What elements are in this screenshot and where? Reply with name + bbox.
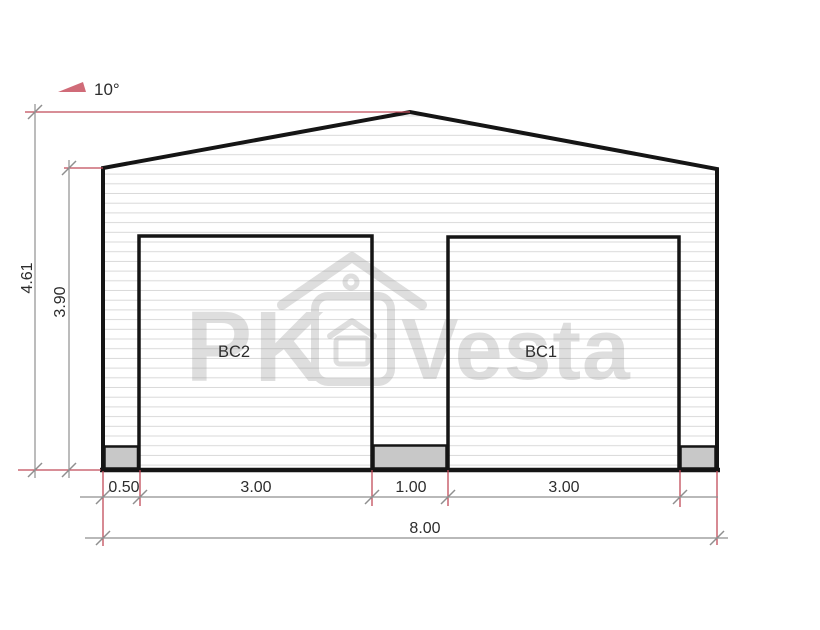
dim-label-wall-height: 3.90 bbox=[52, 286, 69, 317]
foundation-block-middle bbox=[374, 446, 447, 469]
dim-label-segment-1: 0.50 bbox=[108, 479, 139, 496]
dim-label-total-height: 4.61 bbox=[19, 262, 36, 293]
dim-label-total-width: 8.00 bbox=[409, 520, 440, 537]
dim-label-segment-2: 3.00 bbox=[240, 479, 271, 496]
foundation-block-right bbox=[681, 447, 716, 469]
dim-label-segment-4: 3.00 bbox=[548, 479, 579, 496]
angle-icon bbox=[58, 82, 86, 92]
watermark-brand-right: Vesta bbox=[401, 302, 631, 398]
roof-angle-label: 10° bbox=[94, 80, 120, 99]
watermark-brand-left: PK bbox=[186, 291, 329, 403]
door-bc2-label: BC2 bbox=[218, 343, 250, 361]
angle-annotation: 10° bbox=[58, 80, 120, 99]
foundation-block-left bbox=[105, 447, 139, 469]
door-bc1-label: BC1 bbox=[525, 343, 557, 361]
elevation-drawing: PK Vesta bbox=[0, 0, 820, 630]
drawing-canvas: PK Vesta bbox=[0, 0, 820, 630]
dim-label-segment-3: 1.00 bbox=[395, 479, 426, 496]
